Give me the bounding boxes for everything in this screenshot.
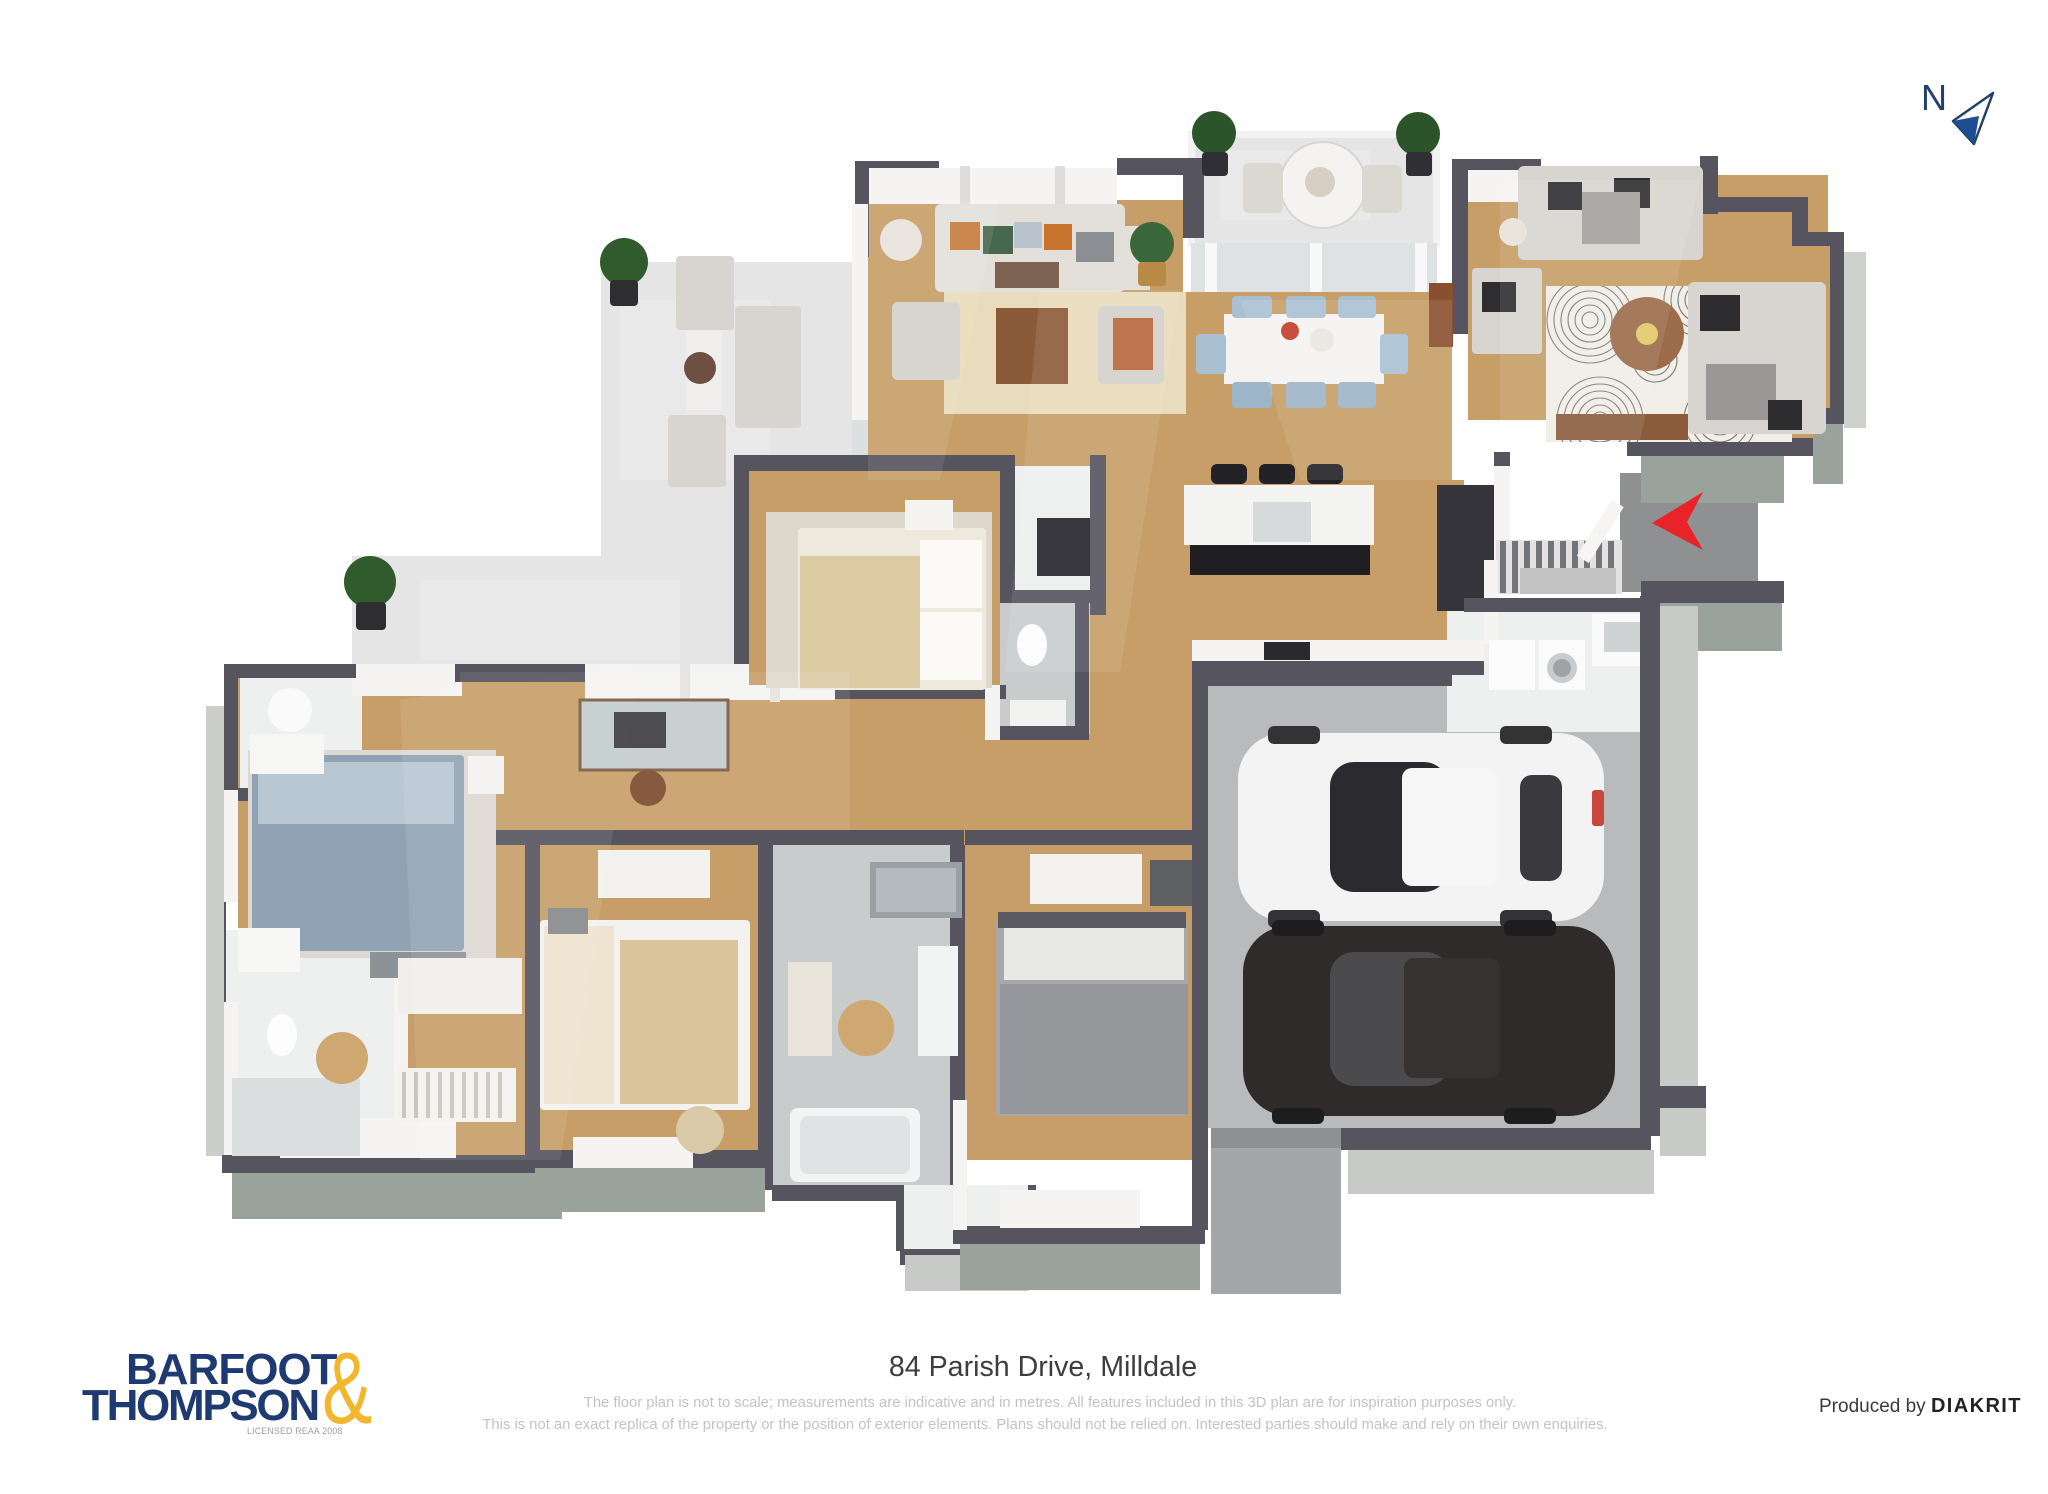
svg-text:N: N: [1921, 77, 1947, 118]
svg-text:Produced by DIAKRIT: Produced by DIAKRIT: [1819, 1395, 2022, 1417]
svg-text:LICENSED REAA 2008: LICENSED REAA 2008: [247, 1426, 343, 1436]
svg-text:The floor plan is not to scale: The floor plan is not to scale; measurem…: [584, 1395, 1516, 1411]
svg-text:84 Parish Drive, Milldale: 84 Parish Drive, Milldale: [889, 1351, 1197, 1383]
svg-text:THOMPSON: THOMPSON: [82, 1381, 318, 1430]
svg-text:This is not an exact replica o: This is not an exact replica of the prop…: [482, 1417, 1607, 1433]
